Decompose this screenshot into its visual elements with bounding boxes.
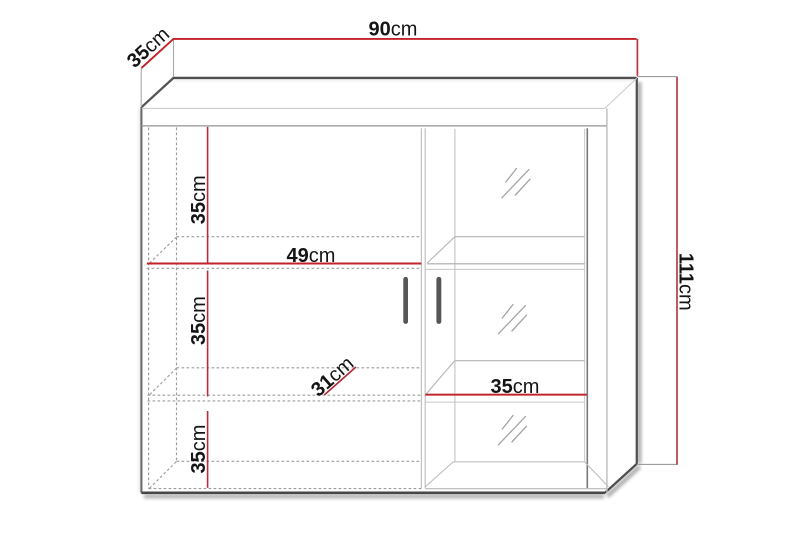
svg-text:35cm: 35cm — [188, 425, 210, 474]
svg-text:111cm: 111cm — [675, 253, 697, 311]
svg-text:31cm: 31cm — [307, 352, 358, 401]
svg-text:90cm: 90cm — [369, 18, 418, 40]
svg-text:49cm: 49cm — [287, 245, 336, 267]
svg-text:35cm: 35cm — [123, 23, 174, 72]
svg-text:35cm: 35cm — [491, 376, 540, 398]
svg-text:35cm: 35cm — [188, 296, 210, 345]
svg-text:35cm: 35cm — [188, 175, 210, 224]
